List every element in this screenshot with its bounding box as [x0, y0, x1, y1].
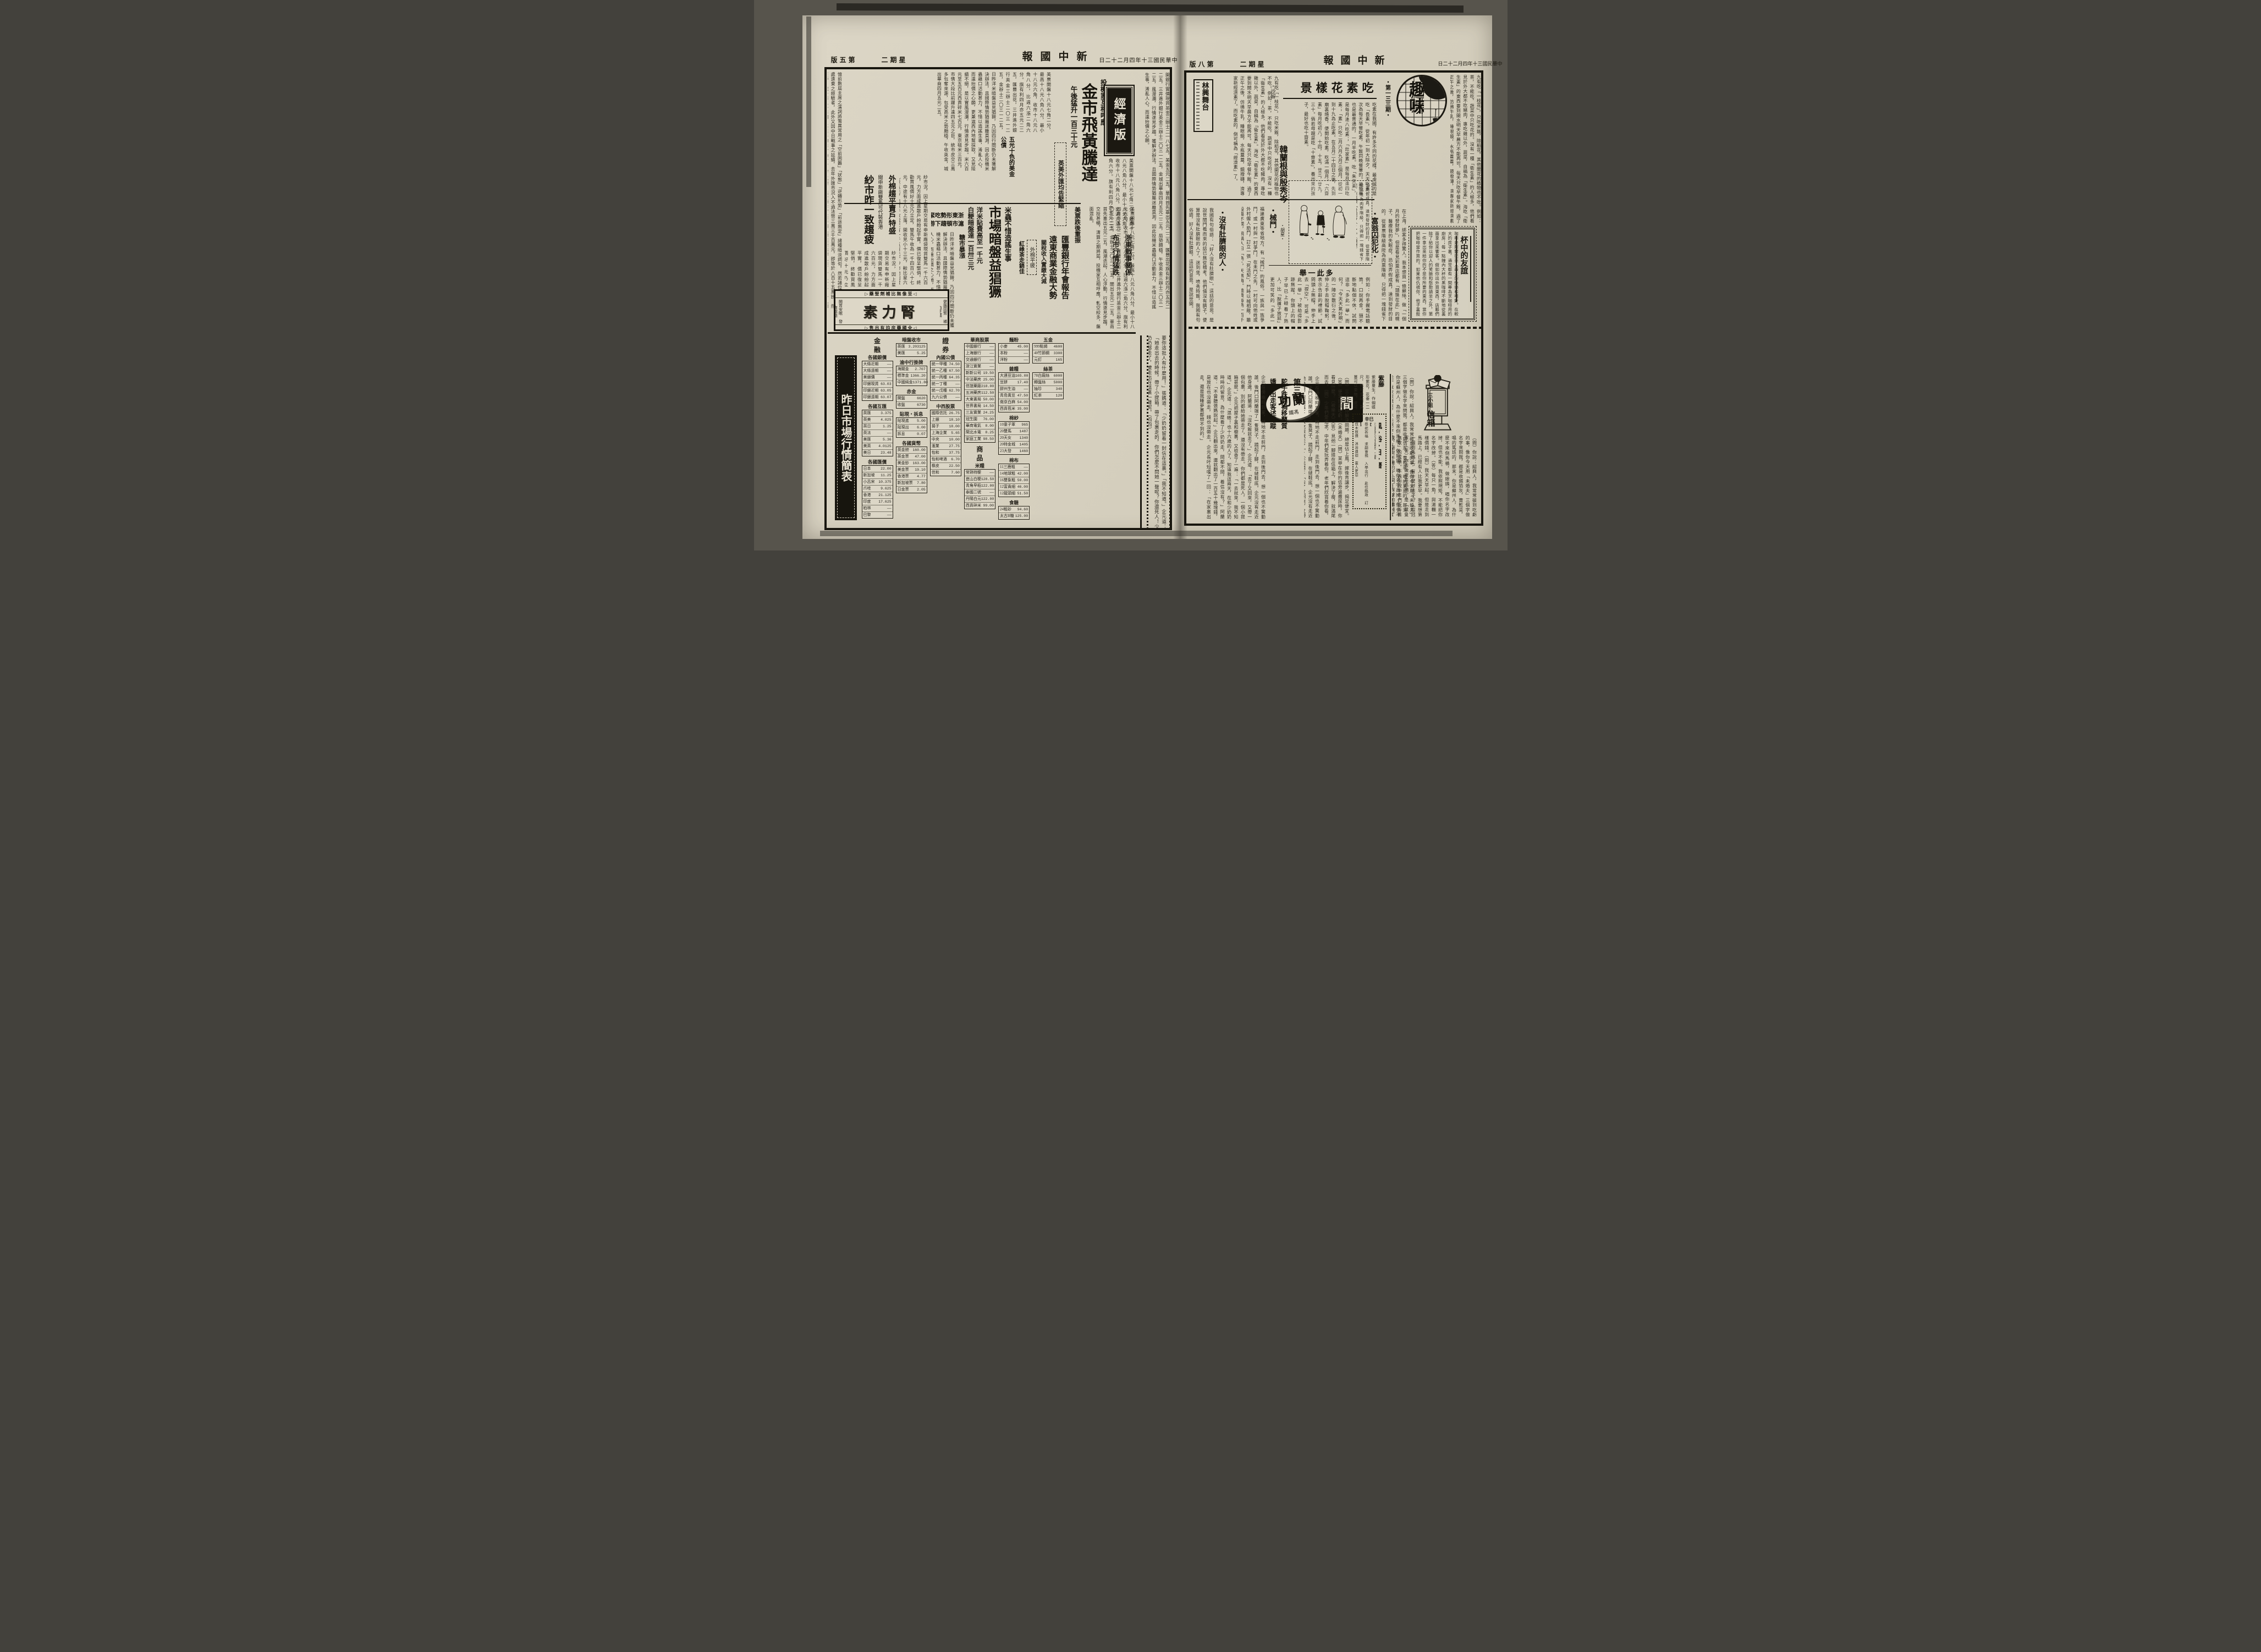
headline-gold-main: 金市飛黃騰達: [1076, 83, 1097, 203]
market-table: 華商股票中國銀行——上海銀行——交通銀行——浙江實業——新新公司19.50中法藥…: [964, 337, 995, 443]
market-table: 金 融各國銀價大條近期——大條遠期——美銀價——印銀現貨63.03印銀近期63.…: [862, 337, 893, 401]
first-column-body: 開銀行實價現貨英金三辦士二一八七五，美金五元二五，華商首先塞出五元二二五，匯豐出…: [1138, 73, 1171, 309]
coffee-article-body: 咖啡是阿爾巴亞人最大的快樂和嗜好。在較大的房子裏，通常都有一間專為烹咖啡用的廚房…: [1413, 232, 1460, 316]
headline-bellybutton: ・沒有肚臍眼的人・: [1217, 209, 1228, 285]
market-table: 絲茶78白廠絲6000轉盤絲5000抽珍340紅茶120: [1032, 366, 1064, 399]
advice-column: （問）三小姐，你解決問題，總是佔上風，嫁後肯讓步，揭足便宜。（答）便宜即是吃虧。…: [1323, 375, 1350, 518]
market-summary-banner: 昨日市場行情簡表: [835, 355, 857, 520]
headline-zj-line1: 浙東形勢吃緊: [931, 211, 964, 219]
headline-cotton-sellers: 外棉趨平賣戶特盛: [886, 175, 897, 252]
serial-continuation-strip: 要你這批人有什麼用！」張媽道：「少奶奶留着一封信在這裏。」「我不知道。」企元道：…: [1147, 335, 1171, 529]
cartoon-figures: [1290, 182, 1355, 262]
market-table: 商 品米糧常熟特粳——崑山白粳128.50青角早稻122.00泰國二號——丹陽白…: [964, 445, 995, 509]
scan-edge-streak-bottom: [820, 531, 1453, 536]
market-table: 各國匯價日本22.00新加坡11.25小呂宋10.375爪哇9.625香港21.…: [862, 459, 893, 519]
ad-product-name: 腎力素: [843, 301, 940, 322]
market-table: 赤金開盤6620收盤6730: [896, 388, 927, 409]
headline-tea: 紅綠茶走銷佳: [1017, 241, 1025, 286]
cartoon-caption: 怕弄假成真，達到發財的目的，從當票階級高陞為肉票階級，只得把一塊錢省下來，依舊做…: [1356, 183, 1371, 261]
serial-text: 企元在傍晚時到家，特地不走前門，走到後門去，想一個也不驚動誰。後門口阿蘭端了一隻…: [1189, 375, 1267, 519]
rule-veg-title: [1283, 98, 1377, 99]
issue-number: ・第一三三期・: [1383, 79, 1391, 147]
almanac-date: 三月廿六日庚子土曜: [1374, 422, 1378, 505]
page5-masthead: 新中國報: [1022, 48, 1095, 63]
market-table: 雜糧大連豆油165.00豆餅17.40膠州生油——青島黃豆47.50南京白麻54…: [998, 366, 1030, 412]
serial-title-line2: 嬌娃出走客述萍蹤: [1268, 378, 1277, 496]
seal-economics-label: 經濟版: [1107, 88, 1131, 153]
us-notes-body: 美票開盤十八元七角二分，最高十八元八角八分，最小十八元六角，收市十八元八角八分，…: [1083, 207, 1136, 329]
market-table: 證 券內國公債統一甲種74.50統一乙種67.50統一丙種64.35統一丁種——…: [930, 337, 961, 401]
almanac-ji-list: 伐木放債 沐浴遠迴 東人更忌: [1355, 422, 1358, 505]
mailbox-qa-main: （問）你說：紹興人，我常常碰到吃虧的事，像你今天用「未婚夫」三個字做名字來問我，…: [1392, 436, 1478, 517]
page5-label: 第五版: [831, 55, 857, 64]
theater-ad-smalltext: [1196, 82, 1200, 129]
mailbox-title-small: 三小姐: [1427, 393, 1434, 411]
market-table: 棉布11三鹿粗——14地球粗42.0016雙象粗50.0012富貴細46.001…: [998, 457, 1030, 497]
right-margin-body: 九有吃「一枝花」，只吃米飯，除稻花，其他開花的植物也不吃。例如：茶，不能吃，蔬菜…: [1450, 75, 1482, 223]
mailbox-column: 三小姐 信箱 （問）你說：紹興人，我常常碰到吃虧的事，像你今天用「未婚夫」三個字…: [1390, 374, 1480, 520]
logo-quwei-characters: 趣味: [1407, 81, 1424, 114]
wisteria-text: 紫藤蔓生，作蝴蝶形紫花，花垂一二尺，殊可愛玩。其蔓可以束物，皮可製絲樣布。: [1352, 375, 1377, 409]
theater-ad-name: 林興舞台: [1201, 82, 1210, 130]
wisteria-note: 紫藤 紫藤蔓生，作蝴蝶形紫花，花垂一二尺，殊可愛玩。其蔓可以束物，皮可製絲樣布。: [1352, 374, 1385, 410]
wisteria-title: 紫藤: [1377, 375, 1385, 408]
headline-us-notes: 美票跌後重振: [1073, 207, 1082, 245]
bellybutton-article-body: 我國有句俗語：「好人沒有肚臍眼」。這話的意思，是說世間門檻而來的話已無從稽考，他…: [1189, 208, 1215, 322]
headline-yarn-main: 紗市昨一致趨疲: [845, 175, 876, 245]
serial-chapter-block: 第三回 駝子跌翻禍移蘭質 嬌娃出走客述萍蹤: [1269, 378, 1302, 496]
headline-xiedou: ・械鬥・: [1268, 207, 1278, 243]
page8-label: 第八版: [1190, 59, 1216, 69]
shenlisu-ad: ◁至像無比補劑聖藥▷ 健腦固腎 補血生精 腎力素 開胃安眠 發育滋陰 ◁全國藥房…: [834, 289, 949, 331]
almanac-yi-list: 祭祀祈福 求嗣會親 入學出行 赴任臨政 訂婚納采 嫁娶解除 治病裁衣 修造動土 …: [1365, 422, 1368, 505]
market-table: 中西股票國際信託26.75上銀18.10揚子18.00上海企業5.65中央10.…: [930, 403, 961, 476]
cartoon-byline: ・胡星・: [1280, 223, 1286, 243]
yarn-article-body2: 紗市況，因上星期交易有申新廠袋現貨雙馬一千六百元，力方面成進散戶紛紛起平實，價已…: [899, 175, 929, 285]
headline-rice-main: 市場暗盤益猖獗: [984, 206, 1001, 315]
ad-bottom-slogan: ◁全國藥房均有出售▷: [835, 324, 948, 332]
headline-rice-sub1: 洋米貼費高至一千元: [975, 207, 984, 290]
ad-right-text: 健腦固腎 補血生精: [940, 298, 948, 324]
page5-date: 中華民國三十年四月二十二日: [1099, 56, 1178, 64]
serial-chapter: 第三回: [1291, 378, 1301, 411]
market-table: 暗盤收市英匯3.203125美匯5.25: [896, 337, 927, 357]
incense-icon: [1428, 108, 1440, 123]
ad-top-slogan: ◁至像無比補劑聖藥▷: [835, 291, 948, 298]
cartoon-panel: 怕弄假成真，達到發財的目的，從當票階級高陞為肉票階級，只得把一塊錢省下來，依舊做…: [1289, 180, 1372, 264]
page5-content-box: 憶前數屆主席之演詞將鷩異常用之「空前困難」「狀態」「逆轉形勢」「前途無定」諸種暗…: [824, 67, 1172, 530]
newspaper-scan: 第五版 星期二 新中國報 中華民國三十年四月二十二日 第八版 星期二 新中國報 …: [754, 0, 1508, 550]
rule-serial-strip: [1140, 335, 1142, 529]
market-table: 各國貨幣英金鎊160.00英金票47.00美金鈔163.00美金票19.10香港…: [896, 440, 927, 493]
gold-article-body: 日昨洋米暗盤益見猖獗，乃因四行間斷仍未獲解決辦法，且國際情勢猶屬迷離莫測，因此投…: [845, 72, 997, 171]
headline-cartoon: 韓蘭根與殷秀岑: [1278, 145, 1289, 220]
almanac-yi-label: 宜: [1370, 422, 1373, 505]
serial-title-line1: 駝子跌翻禍移蘭質: [1280, 378, 1288, 496]
duoci-article-body: 例如：你手握電話聽筒，口說再會，頭不斷地點個不休，試問這非「多此一舉」而何？「今…: [1269, 277, 1371, 323]
section-seal-economics: 經濟版: [1104, 85, 1135, 156]
market-table: 棉紗10童子軍96520雙馬148720天女134020特金城140523大發1…: [998, 415, 1030, 455]
headline-duoci: 多此一舉: [1269, 267, 1335, 278]
mailbox-icon: [1416, 375, 1459, 432]
page5-margin-column: 憶前數屆主席之演詞將鷩異常用之「空前困難」「狀態」「逆轉形勢」「前途無定」諸種暗…: [828, 72, 843, 309]
headline-zj-line2: 滬市頓趨下游: [931, 219, 964, 228]
serial-text2: 企元在傍晚時到家，特地不走前門，走到後門去，想一個也不驚動誰。後門口阿蘭端了一隻…: [1304, 376, 1321, 518]
rule-serial-top: [1189, 327, 1481, 329]
headline-zhedong-market: 浙東形勢吃緊 滬市頓趨下游: [931, 211, 964, 228]
headline-vegetarian: 吃素花樣景: [1283, 79, 1378, 96]
headline-sugar: 糖市暴漲: [958, 234, 966, 264]
veg-byline: ・沙留: [1270, 84, 1277, 106]
page8-weekday: 星期二: [1240, 59, 1267, 69]
headline-tariff: 關稅收入實繳大減: [1039, 240, 1047, 301]
fuweng-article-body: 在上海，綁案多得驚人。我本想買一條蘇絲，做「一個月的發財夢」，但是看見彩票店都有…: [1379, 209, 1407, 321]
yarn-article-body: 紗市況，因上星期交易有申新廠袋現貨雙馬一千六百元，力方面成進散戶紛紛起平實，價已…: [845, 251, 897, 287]
headline-hsbc-line2: 遠東商業金融大勢: [1048, 235, 1059, 327]
market-table: 渝中行掛牌海關金2.707標準金1366.20中國純金1371.80: [896, 359, 927, 386]
mailbox-title-big: 信箱: [1425, 410, 1437, 431]
headline-rice-sub2: 白粳暗盤達一百卅三元: [966, 207, 975, 290]
rule-row2: [828, 332, 1136, 334]
market-table: 麵粉小麥45.00本粉——洋粉——: [998, 337, 1030, 364]
scan-edge-streak: [836, 3, 1463, 13]
headline-fx-tighten-box: 英美外匯均告緊縮: [1054, 142, 1066, 226]
coffee-article-box: 杯中的友誼 咖啡是阿爾巴亞人最大的快樂和嗜好。在較大的房子裏，通常都有一間專為烹…: [1410, 228, 1475, 320]
market-table: 貼現・拆息貼現進5.00貼現出6.00拆息0.07: [896, 411, 927, 438]
rule-duoci: [1269, 265, 1371, 266]
headline-cotton-flat-box: 外棉平疲: [1027, 240, 1037, 275]
headline-hsbc-line1: 匯豐銀行年會報告: [1060, 235, 1071, 327]
almanac-ji-label: 忌: [1360, 422, 1363, 505]
fx-article-body: 美票開盤十八元七角二分，最高十八元八角八分，最小十八元六角，收市十八元八角八分，…: [999, 72, 1052, 133]
theater-ad: 林興舞台: [1193, 79, 1213, 132]
headline-gold-bonds: 五光十色的美金公債: [999, 136, 1016, 179]
almanac-box: 辛巳 風・俗・日・曆 三月廿六日庚子土曜 宜 祭祀祈福 求嗣會親 入學出行 赴任…: [1352, 414, 1387, 509]
xiedou-article-body: 福建廣東等省地方，有「械鬥」的風俗。一族與一族爭鬥，或一村與一村爭鬥。在未鬥之先…: [1241, 207, 1266, 322]
almanac-title: 風・俗・日・曆: [1379, 422, 1384, 505]
ad-left-text: 開胃安眠 發育滋陰: [835, 298, 843, 324]
market-table: 五金999點錫460040竹節鋼3300元釘165: [1032, 337, 1064, 364]
market-table: 食糖24粗砂94.60太古B糖125.00: [998, 499, 1030, 520]
headline-rice-kicker: 米蟲不惜造謠生事: [1003, 207, 1013, 285]
headline-yarn-kicker: 聞申新廠雙馬可代裝香港: [877, 175, 884, 251]
scan-edge-streak-left: [806, 16, 811, 187]
quwei-section-logo: 趣味: [1396, 75, 1447, 126]
page5-weekday: 星期二: [882, 55, 908, 64]
almanac-ganzhi: 辛巳: [1355, 416, 1384, 422]
page8-masthead: 新中國報: [1324, 53, 1392, 67]
market-tables: 金 融各國銀價大條近期——大條遠期——美銀價——印銀現貨63.03印銀近期63.…: [862, 337, 1132, 528]
market-table: 各國互匯英匯3.375英美4.025英日1.25英法——美匯5.36美英4.01…: [862, 403, 893, 456]
page8-content-box: 林興舞台 九有吃「一枝花」，只吃米飯，除稻花，其他開花的植物也不吃。例如：茶，不…: [1184, 70, 1483, 526]
page8-date: 中華民國三十年四月二十二日: [1438, 60, 1503, 67]
